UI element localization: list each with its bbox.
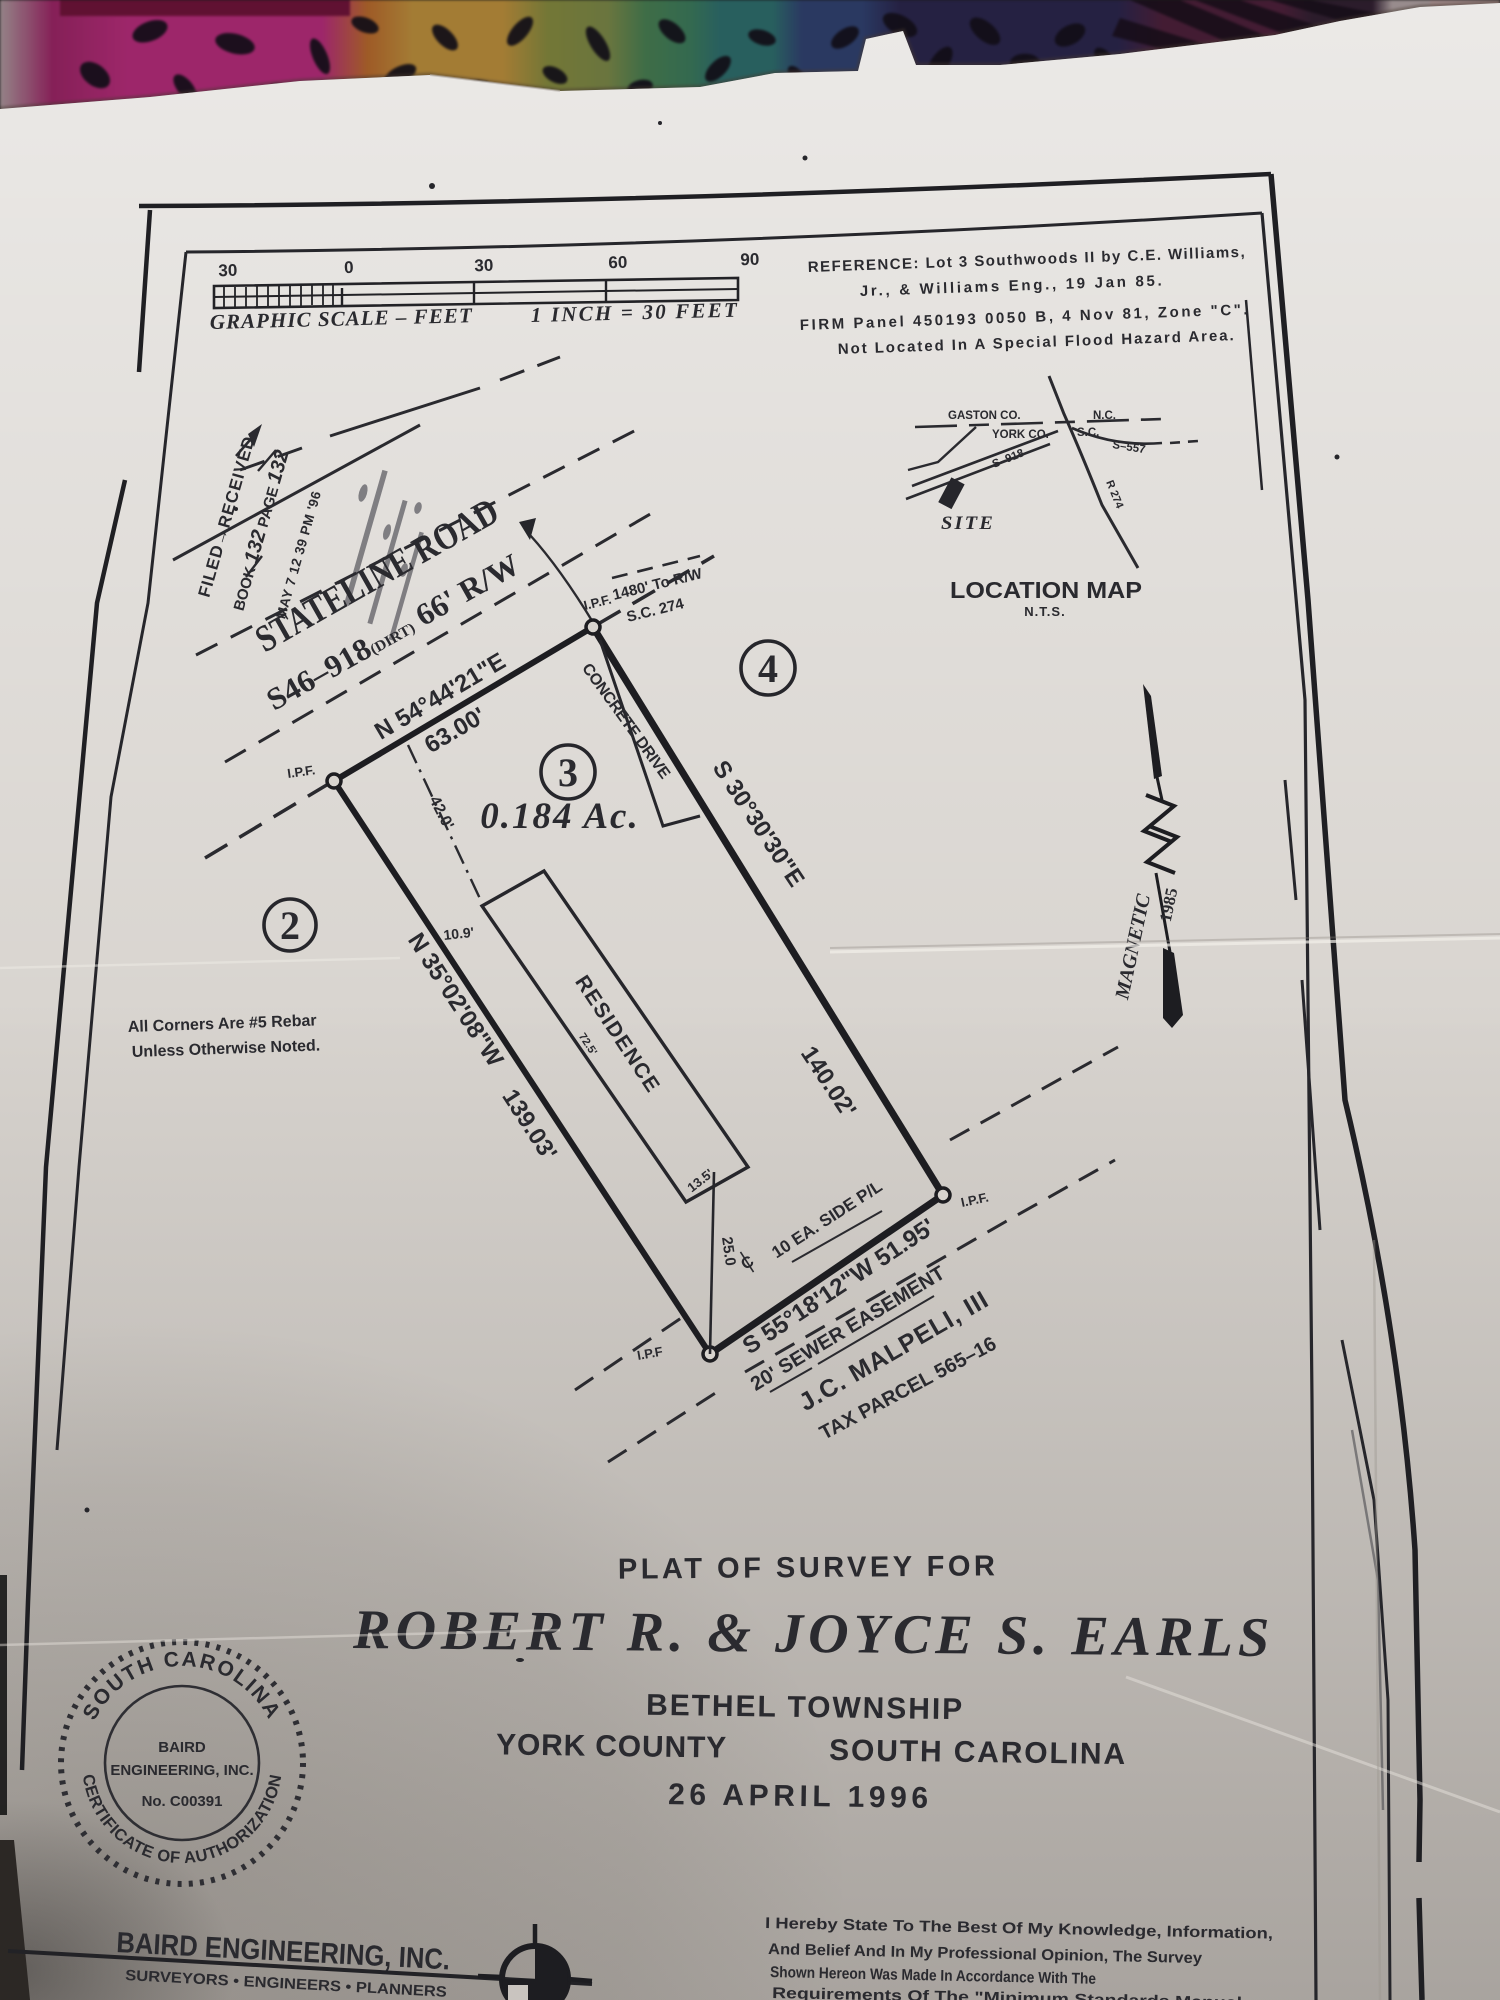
- svg-text:SOUTH CAROLINA: SOUTH CAROLINA: [829, 1734, 1127, 1771]
- svg-text:0: 0: [344, 258, 354, 277]
- svg-text:10.9': 10.9': [443, 924, 475, 943]
- svg-text:PLAT OF SURVEY FOR: PLAT OF SURVEY FOR: [618, 1550, 998, 1585]
- svg-text:60: 60: [608, 253, 627, 272]
- svg-text:3: 3: [558, 750, 578, 795]
- svg-text:2: 2: [280, 903, 300, 948]
- svg-text:ENGINEERING, INC.: ENGINEERING, INC.: [110, 1762, 253, 1779]
- svg-text:ROBERT R. & JOYCE S. EARLS: ROBERT R. & JOYCE S. EARLS: [352, 1599, 1274, 1669]
- svg-text:4: 4: [758, 646, 778, 691]
- svg-text:30: 30: [218, 261, 237, 280]
- svg-text:No. C00391: No. C00391: [142, 1793, 223, 1810]
- svg-text:30: 30: [474, 256, 493, 275]
- svg-text:S.C.: S.C.: [1077, 427, 1099, 439]
- svg-text:LOCATION MAP: LOCATION MAP: [950, 577, 1142, 603]
- svg-text:YORK CO.: YORK CO.: [992, 429, 1049, 441]
- svg-text:GASTON CO.: GASTON CO.: [948, 410, 1021, 422]
- svg-text:N.C.: N.C.: [1093, 410, 1116, 422]
- svg-text:0.184 Ac.: 0.184 Ac.: [480, 796, 639, 837]
- svg-text:BETHEL TOWNSHIP: BETHEL TOWNSHIP: [646, 1689, 964, 1726]
- svg-text:26 APRIL 1996: 26 APRIL 1996: [668, 1778, 930, 1815]
- svg-text:N.T.S.: N.T.S.: [1024, 604, 1065, 619]
- svg-text:YORK COUNTY: YORK COUNTY: [496, 1728, 728, 1764]
- svg-text:SITE: SITE: [941, 513, 995, 534]
- svg-text:BAIRD: BAIRD: [158, 1739, 206, 1756]
- svg-text:90: 90: [740, 250, 759, 269]
